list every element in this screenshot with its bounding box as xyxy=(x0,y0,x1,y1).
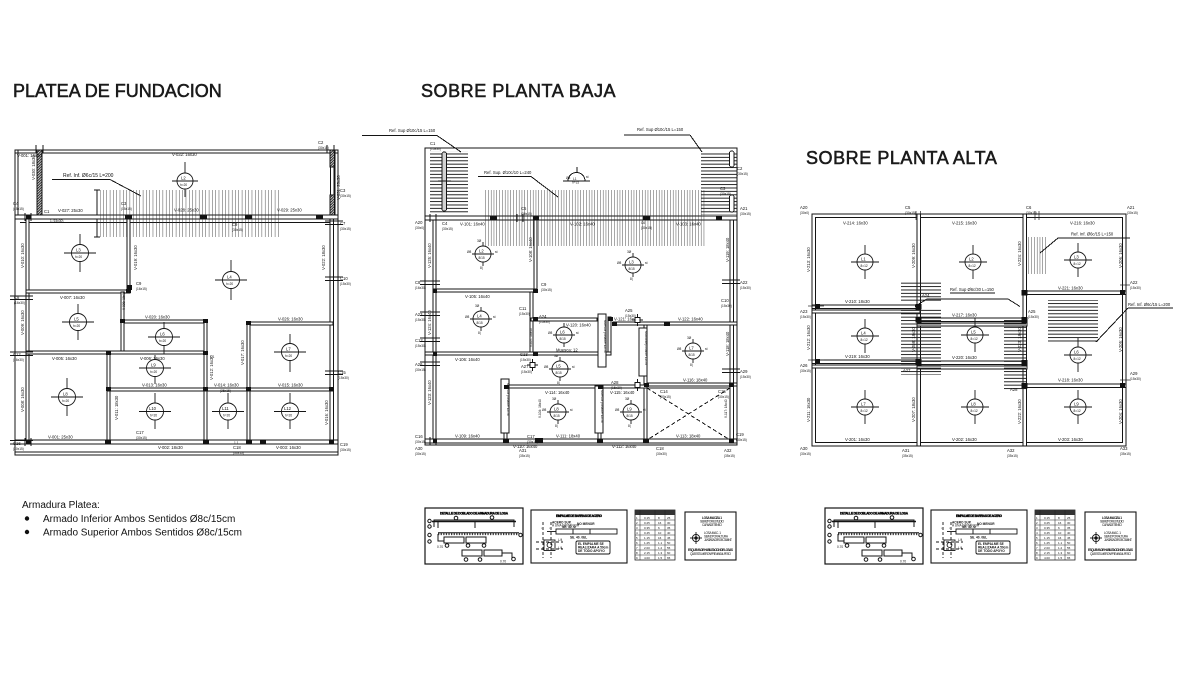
svg-text:st: st xyxy=(643,408,646,412)
svg-text:1.3: 1.3 xyxy=(658,551,663,555)
svg-text:A22: A22 xyxy=(740,280,748,285)
svg-text:1 1: 1 1 xyxy=(210,355,215,359)
svg-text:2.15: 2.15 xyxy=(644,551,650,555)
svg-text:(15x30): (15x30) xyxy=(800,315,811,319)
svg-text:8/15: 8/15 xyxy=(629,267,635,271)
svg-text:h=20: h=20 xyxy=(226,282,233,286)
svg-text:3Ø: 3Ø xyxy=(627,250,632,254)
svg-text:A30: A30 xyxy=(415,446,423,451)
svg-text:V-124: 16x40: V-124: 16x40 xyxy=(427,310,432,335)
svg-text:V-122: 16x40: V-122: 16x40 xyxy=(678,317,703,322)
svg-text:A23: A23 xyxy=(800,309,808,314)
svg-text:(15x30): (15x30) xyxy=(1130,286,1141,290)
svg-text:1.1: 1.1 xyxy=(658,541,663,545)
svg-text:(16x30): (16x30) xyxy=(14,301,25,305)
svg-text:(30x15): (30x15) xyxy=(340,448,351,452)
svg-text:(16x30): (16x30) xyxy=(415,286,426,290)
svg-text:C19: C19 xyxy=(340,442,348,447)
svg-text:1.15: 1.15 xyxy=(644,536,650,540)
svg-text:1 (15x30): 1 (15x30) xyxy=(50,219,63,223)
svg-text:V-221: 16x30: V-221: 16x30 xyxy=(1058,286,1083,291)
svg-text:C17: C17 xyxy=(136,430,144,435)
svg-text:L11: L11 xyxy=(222,406,229,411)
svg-text:st: st xyxy=(495,250,498,254)
svg-text:8=12: 8=12 xyxy=(971,337,978,341)
svg-text:V-014: 16x30: V-014: 16x30 xyxy=(214,383,239,388)
svg-text:8|: 8| xyxy=(555,424,558,428)
svg-text:st: st xyxy=(493,315,496,319)
svg-text:A29: A29 xyxy=(1130,371,1138,376)
svg-text:C11: C11 xyxy=(519,306,527,311)
svg-text:60: 60 xyxy=(667,551,671,555)
svg-text:(35x15): (35x15) xyxy=(724,454,735,458)
svg-text:C5: C5 xyxy=(905,205,911,210)
svg-text:A29: A29 xyxy=(740,369,748,374)
svg-text:V-009: 16x30: V-009: 16x30 xyxy=(20,310,25,335)
svg-text:4.00: 4.00 xyxy=(644,556,650,560)
svg-text:L8: L8 xyxy=(554,407,559,412)
svg-text:(30x15): (30x15) xyxy=(541,288,552,292)
svg-text:C6: C6 xyxy=(1026,205,1032,210)
svg-text:(30x15): (30x15) xyxy=(415,368,426,372)
svg-text:CURVA DE TENSO: CURVA DE TENSO xyxy=(702,523,723,527)
svg-text:(15x30): (15x30) xyxy=(521,370,532,374)
svg-text:A20: A20 xyxy=(800,205,808,210)
svg-text:C14: C14 xyxy=(660,389,668,394)
svg-text:(15x30): (15x30) xyxy=(1028,315,1039,319)
svg-text:A27: A27 xyxy=(903,368,911,373)
svg-text:8/15: 8/15 xyxy=(554,414,560,418)
svg-text:L6: L6 xyxy=(160,332,165,337)
svg-text:A31: A31 xyxy=(902,448,910,453)
svg-text:A23: A23 xyxy=(415,312,423,317)
svg-text:V-114: 16x40: V-114: 16x40 xyxy=(545,390,570,395)
svg-text:(30x0): (30x0) xyxy=(800,211,809,215)
svg-text:(30x15): (30x15) xyxy=(800,452,811,456)
svg-text:16: 16 xyxy=(658,536,662,540)
svg-text:(35x15): (35x15) xyxy=(519,454,530,458)
svg-text:V-213: 16x30: V-213: 16x30 xyxy=(806,247,811,272)
svg-text:L/4: L/4 xyxy=(558,546,563,550)
svg-text:A28: A28 xyxy=(1010,387,1018,392)
svg-text:V-104: 16x40: V-104: 16x40 xyxy=(538,399,542,418)
svg-text:Muesca portante 12cm: Muesca portante 12cm xyxy=(603,320,607,353)
svg-text:A32: A32 xyxy=(1007,448,1015,453)
svg-text:(30x15): (30x15) xyxy=(136,436,147,440)
svg-text:50: 50 xyxy=(667,541,671,545)
svg-text:(15x30): (15x30) xyxy=(415,344,426,348)
svg-text:L12: L12 xyxy=(284,406,292,411)
svg-text:3Ø: 3Ø xyxy=(552,397,557,401)
svg-text:V-109: 16x40: V-109: 16x40 xyxy=(455,433,480,438)
svg-text:C2: C2 xyxy=(318,140,324,145)
svg-text:C10: C10 xyxy=(721,298,729,303)
svg-text:1.25: 1.25 xyxy=(644,541,650,545)
svg-text:h=20: h=20 xyxy=(180,183,187,187)
svg-text:V-218: 16x30: V-218: 16x30 xyxy=(1058,378,1083,383)
svg-text:8=12: 8=12 xyxy=(971,409,978,413)
svg-text:V-030: 18x30: V-030: 18x30 xyxy=(31,155,36,180)
svg-text:V-206: 16x30: V-206: 16x30 xyxy=(1118,243,1123,268)
svg-text:(45x15): (45x15) xyxy=(13,207,24,211)
svg-text:L3: L3 xyxy=(1074,255,1079,260)
svg-text:EMPALME DE BARRAS DE ACERO: EMPALME DE BARRAS DE ACERO xyxy=(556,514,603,518)
svg-text:C9: C9 xyxy=(232,222,238,227)
svg-text:2.00: 2.00 xyxy=(644,546,650,550)
svg-text:45: 45 xyxy=(667,536,671,540)
svg-text:(15x30): (15x30) xyxy=(721,304,732,308)
svg-text:0.35: 0.35 xyxy=(644,526,650,530)
svg-text:A21: A21 xyxy=(740,206,748,211)
svg-text:Ø8: Ø8 xyxy=(615,408,619,412)
svg-text:(16x15): (16x15) xyxy=(136,287,147,291)
svg-text:V-010: 16x30: V-010: 16x30 xyxy=(20,243,25,268)
svg-text:Ø8: Ø8 xyxy=(542,408,546,412)
svg-text:h=20: h=20 xyxy=(150,370,157,374)
svg-text:h=20: h=20 xyxy=(285,354,292,358)
svg-text:8=12: 8=12 xyxy=(1074,409,1081,413)
svg-text:8=12: 8=12 xyxy=(861,264,868,268)
svg-text:C17: C17 xyxy=(527,434,535,439)
svg-text:1.5: 1.5 xyxy=(658,556,663,560)
svg-text:V-119: 18x40: V-119: 18x40 xyxy=(725,237,730,262)
svg-text:V-029: 25x30: V-029: 25x30 xyxy=(277,208,302,213)
svg-text:C12: C12 xyxy=(13,352,21,357)
svg-text:A21: A21 xyxy=(1127,205,1135,210)
svg-text:V-125: 16x40: V-125: 16x40 xyxy=(427,243,432,268)
svg-text:(15x15): (15x15) xyxy=(121,207,132,211)
svg-text:(30x15): (30x15) xyxy=(442,227,453,231)
svg-text:(30x0): (30x0) xyxy=(415,226,424,230)
svg-text:8/15: 8/15 xyxy=(477,321,483,325)
svg-text:h=20: h=20 xyxy=(75,255,82,259)
svg-text:L5: L5 xyxy=(556,364,561,369)
svg-text:NO MENOR: NO MENOR xyxy=(577,522,595,526)
svg-text:Ø8: Ø8 xyxy=(467,250,471,254)
svg-text:C19: C19 xyxy=(736,432,744,437)
svg-text:16: 16 xyxy=(658,521,662,525)
svg-text:(30x15): (30x15) xyxy=(740,212,751,216)
svg-text:(30x15): (30x15) xyxy=(905,211,916,215)
svg-text:8=12: 8=12 xyxy=(969,264,976,268)
svg-text:0.15: 0.15 xyxy=(644,516,650,520)
svg-text:8/15: 8/15 xyxy=(689,353,695,357)
svg-text:V-026: 16x30: V-026: 16x30 xyxy=(278,317,303,322)
svg-text:A33: A33 xyxy=(1120,446,1128,451)
svg-text:h=20: h=20 xyxy=(223,414,230,418)
svg-text:C9: C9 xyxy=(541,282,547,287)
svg-text:C3: C3 xyxy=(340,188,346,193)
svg-text:(15x30): (15x30) xyxy=(740,375,751,379)
svg-text:JUNTAS ACERO ECTA/ANT: JUNTAS ACERO ECTA/ANT xyxy=(704,538,732,542)
svg-text:h=20: h=20 xyxy=(150,414,157,418)
svg-text:8=12: 8=12 xyxy=(1074,357,1081,361)
svg-text:8/15: 8/15 xyxy=(479,256,485,260)
svg-text:(30x15): (30x15) xyxy=(737,172,748,176)
svg-text:Ref. Inf. Ø6c/15 L=200: Ref. Inf. Ø6c/15 L=200 xyxy=(1128,302,1171,307)
svg-text:A26: A26 xyxy=(415,362,423,367)
svg-text:C16: C16 xyxy=(415,434,423,439)
svg-text:h=20: h=20 xyxy=(62,399,69,403)
svg-text:DETALLE DE DOBLADO DE ARMADURA: DETALLE DE DOBLADO DE ARMADURA DE LOSA xyxy=(440,512,509,516)
svg-text:(30x15): (30x15) xyxy=(340,194,351,198)
svg-text:V-027: 25x30: V-027: 25x30 xyxy=(58,208,83,213)
svg-text:V-220: 16x30: V-220: 16x30 xyxy=(952,355,977,360)
svg-text:V-008: 18x30: V-008: 18x30 xyxy=(122,291,126,310)
svg-text:Ø8: Ø8 xyxy=(465,315,469,319)
svg-text:A22: A22 xyxy=(1130,280,1138,285)
svg-text:Ref. Sup Ø10c/15 L=150: Ref. Sup Ø10c/15 L=150 xyxy=(389,128,436,133)
svg-text:A31: A31 xyxy=(519,448,527,453)
svg-text:st: st xyxy=(570,408,573,412)
svg-text:V-015: 16x30: V-015: 16x30 xyxy=(278,383,303,388)
svg-text:L2: L2 xyxy=(969,257,974,262)
svg-text:V-005: 16x30: V-005: 16x30 xyxy=(52,356,77,361)
svg-text:0.45: 0.45 xyxy=(644,531,650,535)
svg-text:(30x15): (30x15) xyxy=(720,192,731,196)
svg-text:(35x15): (35x15) xyxy=(902,454,913,458)
svg-text:V-105: 16x40: V-105: 16x40 xyxy=(465,294,490,299)
svg-text:L2: L2 xyxy=(181,176,186,181)
svg-text:V-208: 18x30: V-208: 18x30 xyxy=(911,327,916,352)
svg-text:L4: L4 xyxy=(227,275,232,280)
svg-text:st: st xyxy=(576,331,579,335)
svg-text:8|: 8| xyxy=(630,277,633,281)
svg-text:Ø8: Ø8 xyxy=(617,261,621,265)
svg-text:st: st xyxy=(645,261,648,265)
svg-text:C9: C9 xyxy=(136,281,142,286)
svg-text:V-118: 18x40: V-118: 18x40 xyxy=(725,331,730,356)
svg-text:L7: L7 xyxy=(689,346,694,351)
svg-text:V-106: 16x40: V-106: 16x40 xyxy=(455,357,480,362)
svg-text:C2: C2 xyxy=(737,166,743,171)
svg-text:L4: L4 xyxy=(861,331,866,336)
svg-text:V-112: 16x40: V-112: 16x40 xyxy=(612,444,637,449)
svg-text:1.2: 1.2 xyxy=(658,546,663,550)
svg-text:h=20: h=20 xyxy=(73,324,80,328)
svg-text:L6: L6 xyxy=(1074,350,1079,355)
svg-text:25: 25 xyxy=(667,516,671,520)
svg-text:0.25: 0.25 xyxy=(644,521,650,525)
svg-text:Ref. Inf. Ø6c/15 L=150: Ref. Inf. Ø6c/15 L=150 xyxy=(1071,232,1114,237)
svg-text:A24: A24 xyxy=(539,314,547,319)
svg-text:A32: A32 xyxy=(724,448,732,453)
svg-text:8|: 8| xyxy=(690,363,693,367)
svg-text:(15x30): (15x30) xyxy=(740,286,751,290)
svg-text:A25: A25 xyxy=(1028,309,1036,314)
svg-text:V-007: 16x30: V-007: 16x30 xyxy=(60,295,85,300)
svg-text:Ø8: Ø8 xyxy=(566,176,570,180)
svg-text:Ref. Inf. Ø6c/15 L=200: Ref. Inf. Ø6c/15 L=200 xyxy=(63,173,114,179)
svg-text:V-003: 16x30: V-003: 16x30 xyxy=(276,445,301,450)
svg-text:V-210: 18x30: V-210: 18x30 xyxy=(845,299,870,304)
svg-text:V-032: 16x30: V-032: 16x30 xyxy=(172,152,197,157)
svg-text:C4: C4 xyxy=(13,201,19,206)
svg-text:(30x30): (30x30) xyxy=(656,452,667,456)
svg-text:V-215: 16x30: V-215: 16x30 xyxy=(952,221,977,226)
svg-text:Ref. Sup Ø10c/15 L=150: Ref. Sup Ø10c/15 L=150 xyxy=(637,127,684,132)
svg-text:L2: L2 xyxy=(479,249,484,254)
svg-text:C13: C13 xyxy=(520,352,528,357)
svg-text:V-101: 16x40: V-101: 16x40 xyxy=(460,222,485,227)
svg-text:8/15: 8/15 xyxy=(627,414,633,418)
svg-text:V-115: 16x40: V-115: 16x40 xyxy=(610,390,635,395)
svg-text:(15x30): (15x30) xyxy=(611,386,622,390)
svg-text:L9: L9 xyxy=(627,407,632,412)
svg-text:3Ø: 3Ø xyxy=(477,239,482,243)
svg-text:(15x30): (15x30) xyxy=(520,358,531,362)
svg-text:SOBRE PLANTA ALTA: SOBRE PLANTA ALTA xyxy=(806,148,997,168)
svg-text:L3: L3 xyxy=(629,260,634,265)
svg-text:L10: L10 xyxy=(149,406,157,411)
svg-text:V-107: 16x40: V-107: 16x40 xyxy=(529,328,533,347)
svg-text:L8: L8 xyxy=(971,402,976,407)
svg-text:V-016: 16x30: V-016: 16x30 xyxy=(324,400,329,425)
svg-text:V-217: 16x30: V-217: 16x30 xyxy=(952,313,977,318)
svg-text:A26: A26 xyxy=(800,363,808,368)
svg-text:40: 40 xyxy=(667,531,671,535)
svg-text:C6: C6 xyxy=(641,221,645,225)
svg-text:3Ø: 3Ø xyxy=(687,336,692,340)
svg-text:V-113: 18x40: V-113: 18x40 xyxy=(676,433,701,438)
svg-text:V-209: 16x30: V-209: 16x30 xyxy=(911,243,916,268)
svg-text:(15x30): (15x30) xyxy=(1130,377,1141,381)
svg-text:V-224: 16x30: V-224: 16x30 xyxy=(1017,241,1022,266)
svg-text:(15x30): (15x30) xyxy=(625,314,636,318)
svg-text:A30: A30 xyxy=(800,446,808,451)
svg-text:Armado Inferior Ambos Sentidos: Armado Inferior Ambos Sentidos Ø8c/15cm xyxy=(43,514,235,525)
svg-text:A20: A20 xyxy=(415,220,423,225)
svg-text:C4: C4 xyxy=(442,221,448,226)
svg-text:L6: L6 xyxy=(560,330,565,335)
svg-text:L5: L5 xyxy=(971,330,976,335)
svg-text:V-017: 16x30: V-017: 16x30 xyxy=(240,340,245,365)
svg-text:(30x15): (30x15) xyxy=(800,369,811,373)
svg-text:(30x15): (30x15) xyxy=(13,447,24,451)
svg-text:C12: C12 xyxy=(415,338,423,343)
svg-text:V-219: 16x30: V-219: 16x30 xyxy=(845,354,870,359)
svg-text:V-117: 18x40: V-117: 18x40 xyxy=(724,399,728,418)
svg-text:(15x30): (15x30) xyxy=(519,312,530,316)
svg-text:V-111: 18x40: V-111: 18x40 xyxy=(556,433,581,438)
svg-text:(30x15): (30x15) xyxy=(641,226,652,230)
svg-text:(15x30): (15x30) xyxy=(430,147,441,151)
svg-text:55: 55 xyxy=(667,546,671,550)
svg-text:3Ø: 3Ø xyxy=(554,354,559,358)
svg-text:L9: L9 xyxy=(151,363,156,368)
svg-text:L7: L7 xyxy=(861,402,866,407)
svg-text:L9: L9 xyxy=(1074,402,1079,407)
svg-text:65: 65 xyxy=(667,556,671,560)
svg-text:V-216: 16x30: V-216: 16x30 xyxy=(1070,221,1095,226)
svg-text:V-223: 18x30: V-223: 18x30 xyxy=(1017,327,1022,352)
svg-text:(30x15): (30x15) xyxy=(415,440,426,444)
svg-text:V-102: 16x40: V-102: 16x40 xyxy=(570,222,595,227)
svg-text:V-207: 18x30: V-207: 18x30 xyxy=(911,397,916,422)
svg-text:Muesca: 12: Muesca: 12 xyxy=(556,348,578,353)
svg-text:V-002: 18x30: V-002: 18x30 xyxy=(158,445,183,450)
svg-text:A25: A25 xyxy=(625,308,633,313)
svg-text:V-028: 25x30: V-028: 25x30 xyxy=(174,208,199,213)
svg-text:SE. 40. 0EL: SE. 40. 0EL xyxy=(570,536,587,540)
svg-text:V-020: 16x30: V-020: 16x30 xyxy=(145,315,170,320)
svg-text:(30x15): (30x15) xyxy=(718,395,729,399)
svg-text:(35x15): (35x15) xyxy=(1120,452,1131,456)
svg-text:C1: C1 xyxy=(430,141,436,146)
svg-text:A27: A27 xyxy=(521,364,529,369)
svg-text:L7: L7 xyxy=(286,347,291,352)
svg-text:(30x15): (30x15) xyxy=(233,451,244,455)
svg-text:st: st xyxy=(586,175,589,179)
svg-text:8/15: 8/15 xyxy=(556,371,562,375)
svg-text:V-202: 16x30: V-202: 16x30 xyxy=(952,437,977,442)
svg-text:Armadura Platea:: Armadura Platea: xyxy=(22,500,100,511)
svg-text:C7: C7 xyxy=(340,221,346,226)
svg-text:V-211: 16x30: V-211: 16x30 xyxy=(806,397,811,422)
svg-text:st: st xyxy=(705,347,708,351)
svg-text:C18: C18 xyxy=(656,446,664,451)
svg-text:V-011: 18x30: V-011: 18x30 xyxy=(114,395,119,420)
svg-text:0.70: 0.70 xyxy=(500,560,506,564)
svg-text:C5: C5 xyxy=(521,206,527,211)
svg-text:L1: L1 xyxy=(861,257,866,262)
svg-text:h=20: h=20 xyxy=(159,339,166,343)
svg-text:V-022: 18x30: V-022: 18x30 xyxy=(321,245,326,270)
svg-text:(25x15): (25x15) xyxy=(220,389,231,393)
svg-text:8|: 8| xyxy=(557,381,560,385)
svg-text:V-008: 16x30: V-008: 16x30 xyxy=(20,387,25,412)
svg-text:V-222: 16x30: V-222: 16x30 xyxy=(1017,399,1022,424)
svg-text:(15x30): (15x30) xyxy=(338,376,349,380)
svg-text:PLATEA DE FUNDACION: PLATEA DE FUNDACION xyxy=(13,81,222,101)
svg-text:V-203: 16x30: V-203: 16x30 xyxy=(1058,437,1083,442)
svg-text:C3: C3 xyxy=(720,186,726,191)
svg-text:C18: C18 xyxy=(233,445,241,450)
svg-text:L4: L4 xyxy=(477,314,482,319)
svg-text:(16x30): (16x30) xyxy=(13,358,24,362)
svg-text:V-116: 18x40: V-116: 18x40 xyxy=(683,378,708,383)
svg-text:V-214: 16x30: V-214: 16x30 xyxy=(843,221,868,226)
svg-text:(30x15): (30x15) xyxy=(736,438,747,442)
svg-text:8|: 8| xyxy=(628,424,631,428)
svg-text:V-201: 16x30: V-201: 16x30 xyxy=(845,437,870,442)
svg-text:Ø8: Ø8 xyxy=(544,365,548,369)
svg-text:V-019: 16x30: V-019: 16x30 xyxy=(133,245,138,270)
svg-text:3Ø: 3Ø xyxy=(625,397,630,401)
svg-text:L/4: L/4 xyxy=(558,538,563,542)
svg-text:V-108: 16x40: V-108: 16x40 xyxy=(528,237,533,262)
svg-text:A28: A28 xyxy=(611,380,619,385)
svg-text:0.70: 0.70 xyxy=(437,545,443,549)
svg-text:C16: C16 xyxy=(13,441,21,446)
svg-text:L8: L8 xyxy=(63,392,68,397)
svg-text:QUE ESTUVIERON PREVIAS AL PESO: QUE ESTUVIERON PREVIAS AL PESO xyxy=(690,552,732,556)
svg-text:SOBRE PLANTA BAJA: SOBRE PLANTA BAJA xyxy=(421,81,616,101)
svg-text:V-204: 16x30: V-204: 16x30 xyxy=(1118,399,1123,424)
svg-text:(15x30): (15x30) xyxy=(539,320,550,324)
svg-text:Ø8: Ø8 xyxy=(677,347,681,351)
svg-text:(15x30): (15x30) xyxy=(415,318,426,322)
svg-text:(15x30): (15x30) xyxy=(340,282,351,286)
svg-text:SE. 40. Ø: SE. 40. Ø xyxy=(562,525,576,529)
svg-text:V-205: 16x30: V-205: 16x30 xyxy=(1118,327,1123,352)
svg-text:8|: 8| xyxy=(480,266,483,270)
svg-text:8=12: 8=12 xyxy=(861,338,868,342)
svg-text:8=12: 8=12 xyxy=(861,409,868,413)
svg-text:DE TODO APOYO: DE TODO APOYO xyxy=(578,549,605,553)
svg-text:L3: L3 xyxy=(76,248,81,253)
svg-text:8=12: 8=12 xyxy=(1074,262,1081,266)
